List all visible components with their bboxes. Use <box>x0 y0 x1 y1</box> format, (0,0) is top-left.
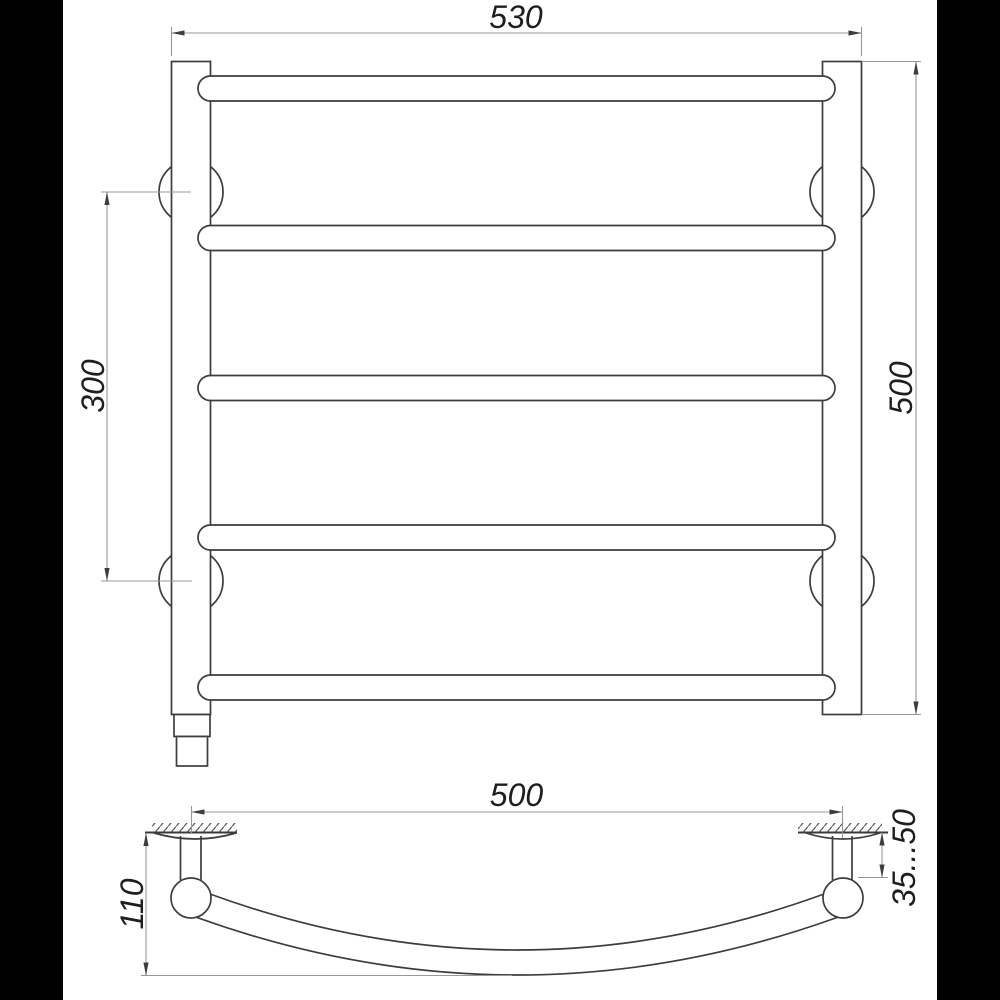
towel-bar-3 <box>198 376 835 401</box>
dim-label-depth: 110 <box>114 878 150 929</box>
dim-label-span: 500 <box>490 777 544 813</box>
dim-label-bracket-spacing: 300 <box>75 359 111 413</box>
towel-bar-2 <box>198 226 835 251</box>
bracket-ball-right <box>823 878 863 918</box>
towel-bar-5 <box>198 675 835 700</box>
inlet-fitting-nut <box>174 715 210 737</box>
towel-bar-4 <box>198 525 835 550</box>
towel-bar-1 <box>198 76 835 101</box>
wall-hatch-left <box>152 823 237 833</box>
dim-label-width: 530 <box>489 0 543 35</box>
towel-rail-technical-drawing: 530 500 300 <box>0 0 1000 1000</box>
inlet-fitting-pipe <box>177 737 208 767</box>
pillarbox-right <box>937 0 1000 1000</box>
wall-hatch-right <box>798 823 882 833</box>
pillarbox-left <box>0 0 63 1000</box>
dim-label-wall-clearance: 35...50 <box>886 809 922 907</box>
bracket-ball-left <box>171 878 211 918</box>
dim-label-height: 500 <box>883 361 919 415</box>
screenshot-canvas: 530 500 300 <box>0 0 1000 1000</box>
